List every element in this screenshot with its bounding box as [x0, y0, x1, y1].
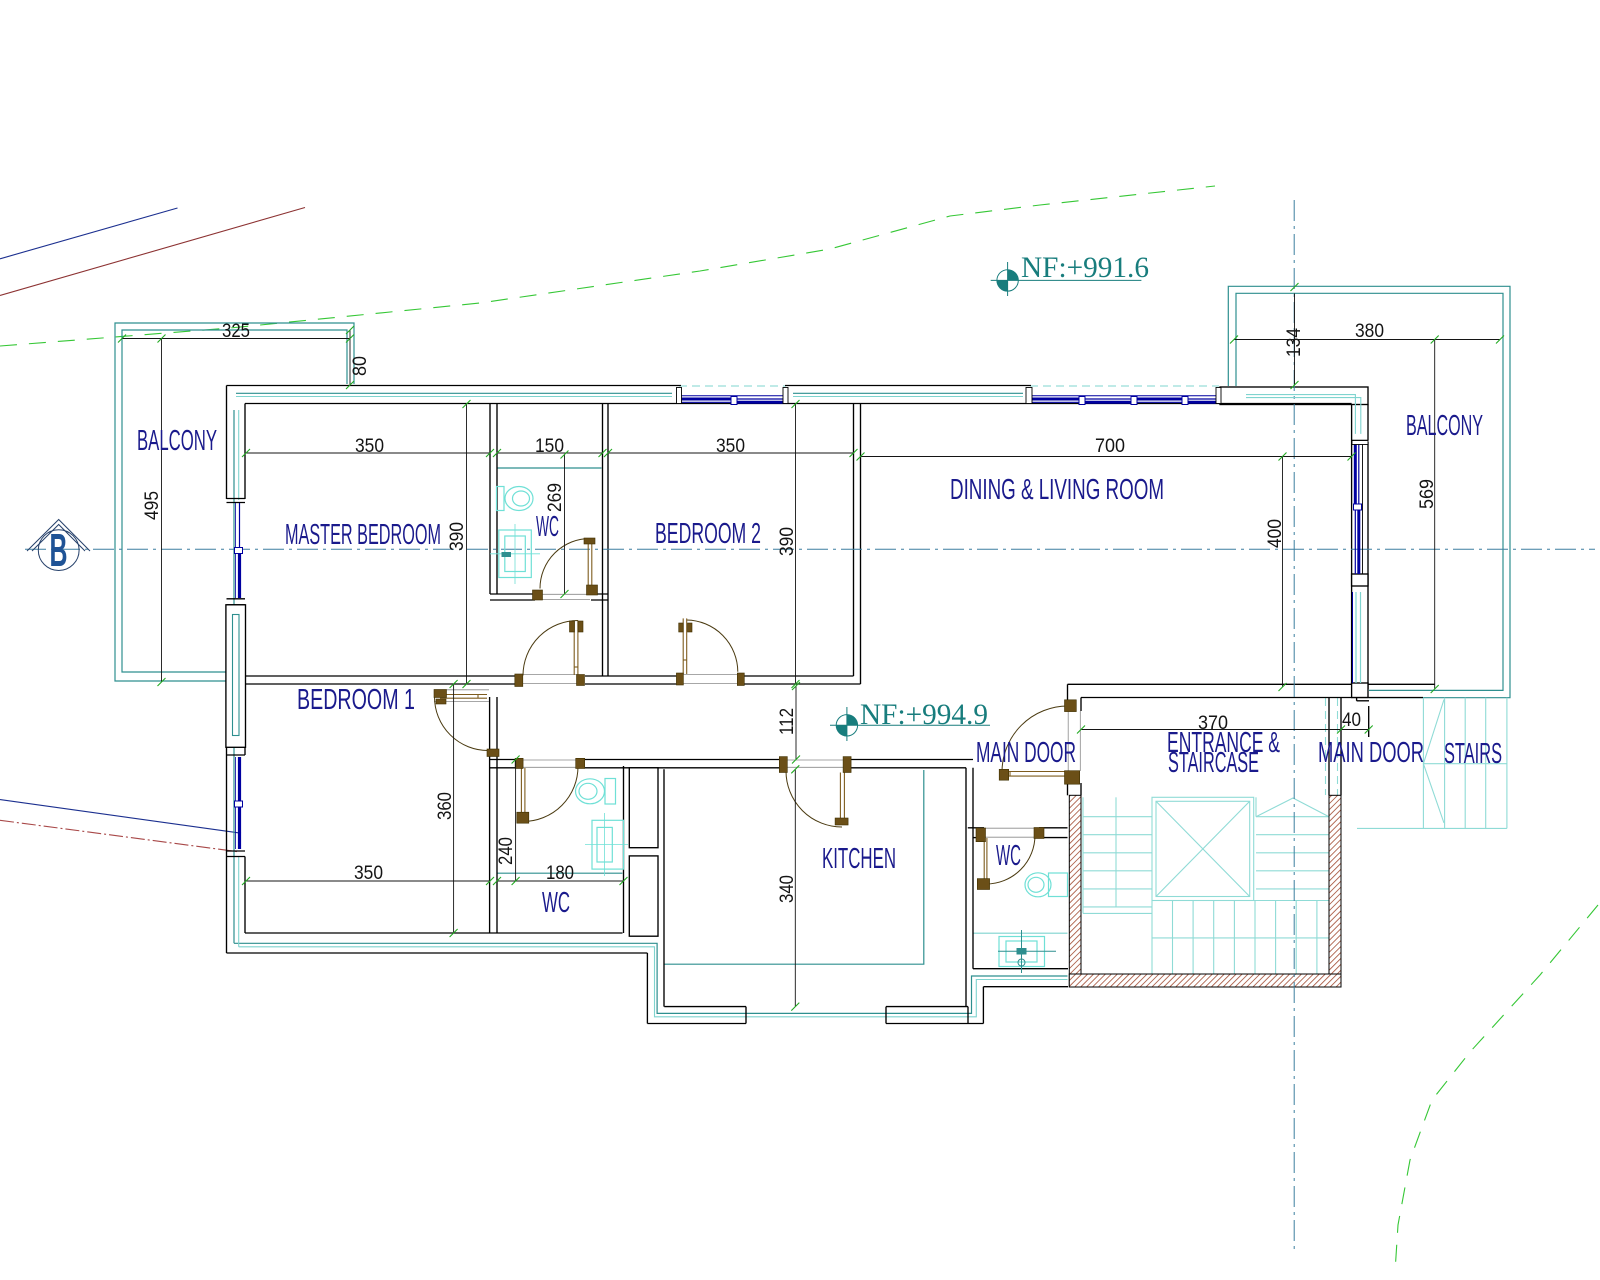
svg-text:KITCHEN: KITCHEN: [822, 843, 896, 875]
svg-text:BEDROOM 1: BEDROOM 1: [297, 684, 415, 716]
svg-text:700: 700: [1095, 436, 1125, 457]
svg-text:DINING & LIVING ROOM: DINING & LIVING ROOM: [950, 474, 1164, 506]
svg-text:BEDROOM 2: BEDROOM 2: [655, 518, 761, 550]
svg-text:WC: WC: [542, 887, 570, 919]
svg-text:STAIRS: STAIRS: [1444, 738, 1502, 770]
svg-text:40: 40: [1342, 710, 1361, 731]
svg-text:NF:+991.6: NF:+991.6: [1021, 251, 1149, 284]
svg-text:WC: WC: [536, 511, 559, 543]
svg-text:240: 240: [496, 837, 517, 865]
svg-text:WC: WC: [996, 840, 1021, 872]
svg-text:MASTER BEDROOM: MASTER BEDROOM: [285, 519, 441, 551]
svg-text:112: 112: [777, 708, 798, 735]
svg-text:80: 80: [350, 356, 371, 376]
svg-text:B: B: [50, 524, 68, 576]
svg-text:BALCONY: BALCONY: [137, 425, 217, 457]
svg-text:MAIN DOOR: MAIN DOOR: [1318, 737, 1424, 769]
svg-text:MAIN DOOR: MAIN DOOR: [976, 737, 1076, 769]
svg-text:390: 390: [447, 522, 468, 551]
svg-text:380: 380: [1355, 321, 1384, 342]
svg-text:325: 325: [222, 321, 250, 342]
svg-text:400: 400: [1265, 519, 1286, 548]
svg-text:269: 269: [545, 483, 566, 512]
svg-text:350: 350: [716, 436, 745, 457]
svg-text:350: 350: [354, 863, 383, 884]
svg-text:390: 390: [777, 527, 798, 556]
svg-text:STAIRCASE: STAIRCASE: [1168, 747, 1259, 779]
svg-text:495: 495: [142, 491, 163, 520]
svg-text:BALCONY: BALCONY: [1406, 410, 1483, 442]
svg-text:150: 150: [535, 436, 564, 457]
svg-text:340: 340: [777, 875, 798, 903]
svg-text:134: 134: [1284, 328, 1305, 357]
svg-text:NF:+994.9: NF:+994.9: [860, 698, 988, 731]
svg-text:350: 350: [355, 436, 384, 457]
svg-text:360: 360: [435, 792, 456, 820]
svg-text:180: 180: [546, 863, 574, 884]
svg-text:569: 569: [1417, 479, 1438, 509]
